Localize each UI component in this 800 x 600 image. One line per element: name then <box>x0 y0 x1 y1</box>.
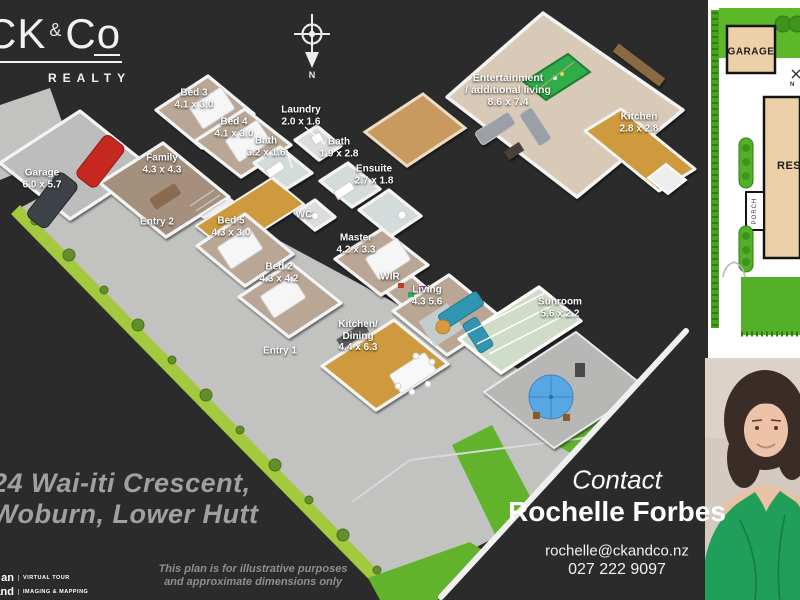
contact-heading: Contact <box>572 465 662 496</box>
siteplan-compass-label: N <box>790 82 794 88</box>
room-label-bed3: Bed 34.1 x 3.0 <box>175 88 214 111</box>
agent-photo <box>705 358 800 600</box>
siteplan-garage-label: GARAGE <box>728 47 775 58</box>
room-label-bath1: Bath3.2 x 1.6 <box>247 136 286 159</box>
room-label-entry2: Entry 2 <box>140 216 174 228</box>
property-address-line2: Woburn, Lower Hutt <box>0 499 258 530</box>
room-label-bath2: Bath1.9 x 2.8 <box>320 137 359 160</box>
room-label-bed5: Bed 54.3 x 3.0 <box>212 216 251 239</box>
badge-virtual-tour: anVIRTUAL TOUR <box>0 572 88 584</box>
brand-logo: CK&Co REALTY <box>0 8 131 85</box>
room-label-bed2: Bed 24.3 x 4.2 <box>260 262 299 285</box>
logo-rule <box>0 61 122 63</box>
room-label-garage: Garage6.0 x 5.7 <box>23 168 62 191</box>
agent-email: rochelle@ckandco.nz <box>545 543 689 560</box>
room-label-kitchen-upper: Kitchen2.8 x 2.8 <box>620 112 659 135</box>
compass-north-label: N <box>309 70 316 80</box>
brand-tagline: REALTY <box>48 71 131 85</box>
siteplan-porch-label: PORCH <box>752 198 758 225</box>
brand-wordmark: CK&Co <box>0 8 131 56</box>
flyer-canvas: CK&Co REALTY N Garage6.0 x 5.7 Bed 34.1 … <box>0 0 800 600</box>
room-label-entertainment: Entertainment/ additional living8.6 x 7.… <box>465 72 551 108</box>
room-label-kitchen-dining: Kitchen/Dining4.4 x 6.3 <box>338 319 377 354</box>
room-label-entry1: Entry 1 <box>263 345 297 357</box>
room-label-laundry: Laundry2.0 x 1.6 <box>281 105 320 128</box>
room-label-wc: WC <box>296 209 313 221</box>
badge-imaging-mapping: andIMAGING & MAPPING <box>0 586 88 598</box>
property-address-line1: 24 Wai-iti Crescent, <box>0 468 251 499</box>
room-label-master: Master4.2 x 3.3 <box>337 233 376 256</box>
footer-badges: anVIRTUAL TOUR andIMAGING & MAPPING <box>0 572 88 600</box>
room-label-wir: WIR <box>380 271 399 283</box>
siteplan-residence-label: RESIDENCE <box>777 160 800 172</box>
room-label-living: Living4.3 5.6 <box>412 285 443 308</box>
room-label-sunroom: Sunroom5.6 x 2.2 <box>538 297 582 320</box>
room-label-family: Family4.3 x 4.3 <box>143 153 182 176</box>
room-label-ensuite: Ensuite2.7 x 1.8 <box>355 164 394 187</box>
agent-phone: 027 222 9097 <box>568 561 666 579</box>
compass-icon <box>290 12 334 74</box>
disclaimer: This plan is for illustrative purposes a… <box>159 563 348 589</box>
agent-name: Rochelle Forbes <box>508 496 726 528</box>
